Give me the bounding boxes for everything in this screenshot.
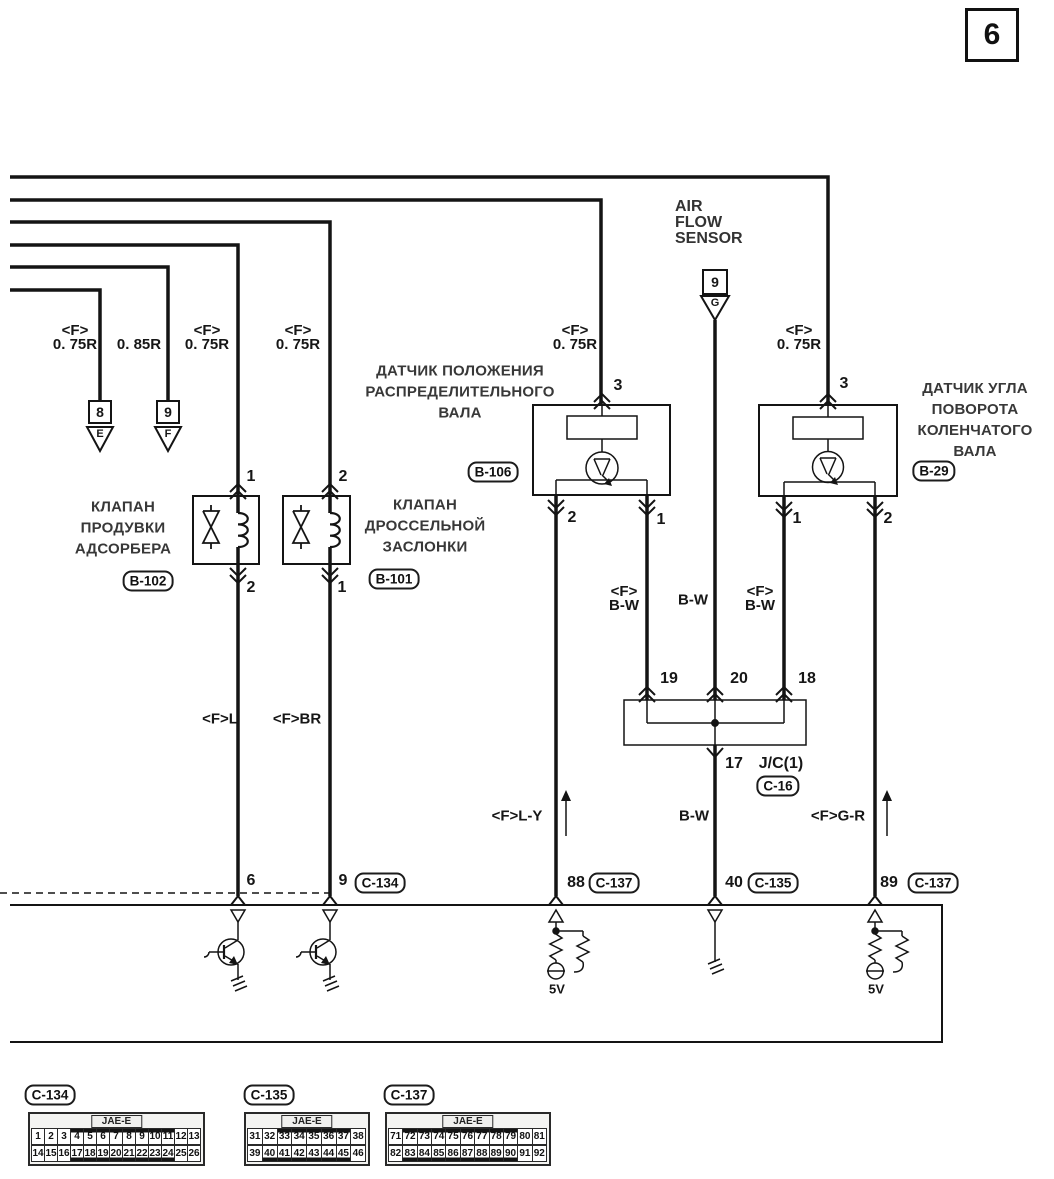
connector-pin-cell: 78 <box>489 1128 504 1145</box>
connector-ref-tag: C-135 <box>244 1085 295 1106</box>
connector-pin-cell: 31 <box>247 1128 263 1145</box>
component-label-b101: КЛАПАН ДРОССЕЛЬНОЙ ЗАСЛОНКИ <box>365 495 486 558</box>
connector-pin-cell: 82 <box>388 1145 403 1162</box>
connector-pin-cell: 9 <box>135 1128 149 1145</box>
connector-pin-cell: 22 <box>135 1145 149 1162</box>
connector-pin-cell: 39 <box>247 1145 263 1162</box>
connector-pin-cell: 2 <box>44 1128 58 1145</box>
wire-color-label: <F>G-R <box>811 808 865 825</box>
connector-pin-cell: 90 <box>503 1145 518 1162</box>
connector-pin-row: 12345678910111213 <box>32 1128 201 1145</box>
pin-number: 3 <box>840 375 849 393</box>
pin-number: 2 <box>339 468 348 486</box>
connector-ref-tag: C-134 <box>355 873 406 894</box>
connector-ref-tag: C-135 <box>748 873 799 894</box>
connector-pin-cell: 23 <box>148 1145 162 1162</box>
connector-pin-cell: 24 <box>161 1145 175 1162</box>
wire-color-label: <F>L <box>202 711 238 728</box>
wire-color-label: <F>L-Y <box>492 808 543 825</box>
connector-pin-cell: 43 <box>306 1145 322 1162</box>
connector-pin-cell: 76 <box>460 1128 475 1145</box>
component-label-b102: КЛАПАН ПРОДУВКИ АДСОРБЕРА <box>75 497 171 560</box>
connector-pin-cell: 92 <box>532 1145 547 1162</box>
connector-pin-cell: 89 <box>489 1145 504 1162</box>
connector-series-label: JAE-E <box>281 1115 332 1128</box>
wire-size-label: <F>0. 75R <box>276 324 320 352</box>
offpage-ref-letter: E <box>96 428 103 440</box>
connector-pin-cell: 1 <box>31 1128 45 1145</box>
pin-number: 1 <box>793 510 802 528</box>
connector-ref-tag: C-137 <box>908 873 959 894</box>
pin-number: 1 <box>338 579 347 597</box>
ecu-box <box>0 893 942 1042</box>
connector-ref-tag: B-101 <box>369 569 420 590</box>
wire-color-label: B-W <box>679 808 709 825</box>
connector-pin-cell: 77 <box>474 1128 489 1145</box>
wire-size-label: <F>0. 75R <box>53 324 97 352</box>
connector-pin-cell: 86 <box>445 1145 460 1162</box>
connector-pin-cell: 75 <box>445 1128 460 1145</box>
connector-pin-cell: 45 <box>336 1145 352 1162</box>
connector-ref-tag: B-106 <box>468 462 519 483</box>
connector-pin-cell: 19 <box>96 1145 110 1162</box>
connector-pin-cell: 5 <box>83 1128 97 1145</box>
connector-pin-cell: 21 <box>122 1145 136 1162</box>
sensor-internals-b29 <box>784 405 875 496</box>
voltage-label: 5V <box>549 982 565 997</box>
connector-pin-cell: 38 <box>350 1128 366 1145</box>
wire-color-label: <F>B-W <box>609 585 639 613</box>
connector-pin-cell: 42 <box>291 1145 307 1162</box>
wire-color-label: <F>BR <box>273 711 321 728</box>
connector-pin-cell: 32 <box>262 1128 278 1145</box>
connector-ref-tag: B-29 <box>912 461 955 482</box>
wire-color-label: B-W <box>678 592 708 609</box>
sensor-internals-b106 <box>556 405 647 495</box>
ecu-pin-number: 6 <box>247 872 256 890</box>
ecu-ground <box>708 910 724 974</box>
wire-color-label: <F>B-W <box>745 585 775 613</box>
connector-pin-cell: 16 <box>57 1145 71 1162</box>
junction-label: J/C(1) <box>759 755 803 773</box>
air-flow-sensor-label: AIR FLOW SENSOR <box>675 199 743 247</box>
connector-pin-row: 7172737475767778798081 <box>389 1128 547 1145</box>
connector-pin-cell: 20 <box>109 1145 123 1162</box>
connector-pin-cell: 91 <box>517 1145 532 1162</box>
pin-number: 1 <box>247 468 256 486</box>
connector-ref-tag: C-137 <box>589 873 640 894</box>
ecu-5v-circuit <box>547 910 589 979</box>
connector-ref-tag: B-102 <box>123 571 174 592</box>
offpage-ref-number: 8 <box>96 404 104 420</box>
connector-pin-cell: 83 <box>402 1145 417 1162</box>
connector-pin-cell: 7 <box>109 1128 123 1145</box>
connector-pin-cell: 3 <box>57 1128 71 1145</box>
connector-pin-table: JAE-E 31323334353637383940414243444546 <box>244 1112 370 1166</box>
ecu-5v-circuit <box>866 910 908 979</box>
connector-pin-cell: 14 <box>31 1145 45 1162</box>
page-number: 6 <box>984 18 1001 52</box>
wire-size-label: <F>0. 75R <box>553 324 597 352</box>
pin-number: 2 <box>568 509 577 527</box>
component-label-b106: ДАТЧИК ПОЛОЖЕНИЯ РАСПРЕДЕЛИТЕЛЬНОГО ВАЛА <box>365 361 554 424</box>
wire-size-label: <F>0. 75R <box>777 324 821 352</box>
wire-size-label: <F>0. 75R <box>185 324 229 352</box>
pin-number: 17 <box>725 755 743 773</box>
junction-box <box>624 700 806 745</box>
connector-pin-cell: 81 <box>532 1128 547 1145</box>
connector-pin-cell: 15 <box>44 1145 58 1162</box>
connector-pin-cell: 10 <box>148 1128 162 1145</box>
connector-pin-cell: 44 <box>321 1145 337 1162</box>
connector-pin-cell: 4 <box>70 1128 84 1145</box>
ecu-pin-number: 89 <box>880 874 898 892</box>
connector-pin-cell: 25 <box>174 1145 188 1162</box>
voltage-label: 5V <box>868 982 884 997</box>
connector-pin-table: JAE-E 7172737475767778798081828384858687… <box>385 1112 551 1166</box>
pin-number: 2 <box>247 579 256 597</box>
ecu-transistor <box>204 910 247 991</box>
solenoid-coil <box>238 513 340 547</box>
offpage-ref-letter: G <box>711 297 720 309</box>
pin-number: 2 <box>884 510 893 528</box>
connector-pin-cell: 88 <box>474 1145 489 1162</box>
connector-pin-cell: 8 <box>122 1128 136 1145</box>
connector-ref-tag: C-137 <box>384 1085 435 1106</box>
ecu-pin-number: 40 <box>725 874 743 892</box>
connector-pin-cell: 79 <box>503 1128 518 1145</box>
connector-pin-table: JAE-E 1234567891011121314151617181920212… <box>28 1112 205 1166</box>
connector-pin-row: 14151617181920212223242526 <box>32 1145 201 1162</box>
connector-pin-cell: 71 <box>388 1128 403 1145</box>
connector-pin-cell: 6 <box>96 1128 110 1145</box>
page-number-box: 6 <box>965 8 1019 62</box>
connector-pin-cell: 33 <box>277 1128 293 1145</box>
ecu-pin-number: 9 <box>339 872 348 890</box>
component-boxes <box>193 405 897 564</box>
connector-pin-cell: 87 <box>460 1145 475 1162</box>
pin-number: 20 <box>730 670 748 688</box>
connector-series-label: JAE-E <box>442 1115 493 1128</box>
connector-pin-cell: 12 <box>174 1128 188 1145</box>
connector-pin-cell: 40 <box>262 1145 278 1162</box>
component-label-b29: ДАТЧИК УГЛА ПОВОРОТА КОЛЕНЧАТОГО ВАЛА <box>917 378 1032 462</box>
offpage-ref-number: 9 <box>164 404 172 420</box>
ecu-transistor <box>296 910 339 991</box>
connector-pin-row: 3940414243444546 <box>248 1145 366 1162</box>
connector-pin-cell: 11 <box>161 1128 175 1145</box>
connector-series-label: JAE-E <box>91 1115 142 1128</box>
connector-pin-row: 8283848586878889909192 <box>389 1145 547 1162</box>
pin-number: 1 <box>657 511 666 529</box>
connector-pin-cell: 17 <box>70 1145 84 1162</box>
connector-pin-cell: 72 <box>402 1128 417 1145</box>
pin-number: 18 <box>798 670 816 688</box>
connector-pin-cell: 73 <box>417 1128 432 1145</box>
connector-pin-cell: 36 <box>321 1128 337 1145</box>
connector-pin-cell: 74 <box>431 1128 446 1145</box>
connector-pin-cell: 13 <box>187 1128 201 1145</box>
connector-pin-row: 3132333435363738 <box>248 1128 366 1145</box>
pin-number: 19 <box>660 670 678 688</box>
pin-number: 3 <box>614 377 623 395</box>
offpage-ref-letter: F <box>165 428 172 440</box>
ecu-pin-number: 88 <box>567 874 585 892</box>
connector-ref-tag: C-16 <box>756 776 799 797</box>
valve-symbol <box>203 505 309 549</box>
connector-pin-cell: 80 <box>517 1128 532 1145</box>
connector-ref-tag: C-134 <box>25 1085 76 1106</box>
connector-pin-cell: 35 <box>306 1128 322 1145</box>
connector-pin-cell: 41 <box>277 1145 293 1162</box>
connector-pin-cell: 18 <box>83 1145 97 1162</box>
offpage-ref-number: 9 <box>711 274 719 290</box>
connector-pin-cell: 46 <box>350 1145 366 1162</box>
connector-pin-cell: 34 <box>291 1128 307 1145</box>
wire-size-label: 0. 85R <box>117 338 161 352</box>
connector-pin-cell: 37 <box>336 1128 352 1145</box>
connector-pin-cell: 26 <box>187 1145 201 1162</box>
connector-pin-cell: 84 <box>417 1145 432 1162</box>
connector-pin-cell: 85 <box>431 1145 446 1162</box>
wiring-diagram-page: 6 <F>0. 75R 0. 85R <F>0. 75R <F>0. 75R <… <box>0 0 1054 1179</box>
